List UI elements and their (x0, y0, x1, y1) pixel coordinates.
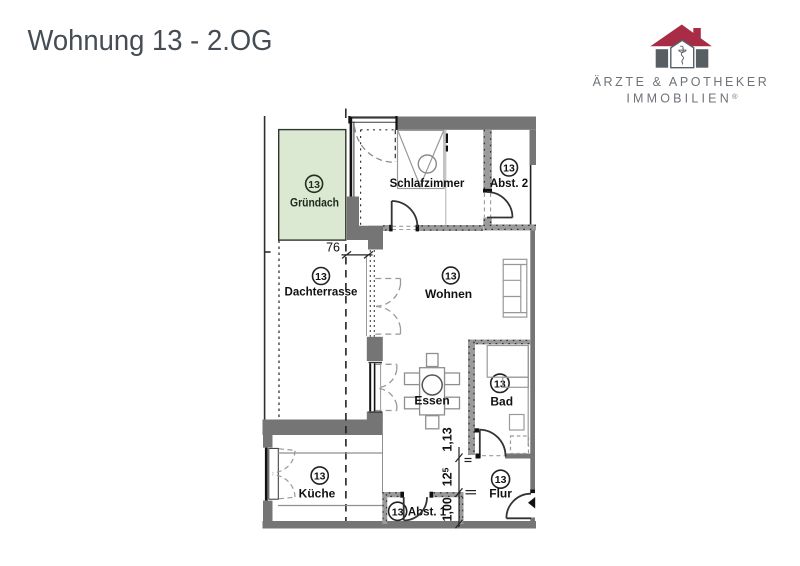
svg-text:Wohnung 13 - 2.OG: Wohnung 13 - 2.OG (28, 25, 273, 57)
svg-text:13: 13 (314, 471, 326, 483)
svg-text:Gründach: Gründach (290, 198, 339, 210)
svg-text:1,13: 1,13 (441, 427, 455, 451)
svg-text:13: 13 (308, 179, 320, 191)
svg-text:ÄRZTE & APOTHEKER: ÄRZTE & APOTHEKER (593, 75, 770, 89)
svg-text:1,00: 1,00 (441, 497, 455, 521)
svg-text:Küche: Küche (299, 487, 336, 501)
svg-text:Flur: Flur (489, 487, 512, 501)
svg-text:Bad: Bad (490, 395, 513, 409)
svg-text:IMMOBILIEN®: IMMOBILIEN® (626, 92, 740, 106)
svg-text:13: 13 (503, 163, 515, 175)
svg-text:Essen: Essen (414, 394, 449, 408)
svg-text:13: 13 (392, 506, 404, 518)
svg-text:13: 13 (445, 271, 457, 283)
svg-text:Schlafzimmer: Schlafzimmer (390, 178, 465, 190)
svg-text:Wohnen: Wohnen (425, 287, 472, 301)
svg-text:Abst. 2: Abst. 2 (490, 178, 528, 190)
svg-text:13: 13 (315, 271, 327, 283)
svg-text:76: 76 (326, 241, 340, 255)
svg-text:13: 13 (495, 474, 507, 486)
svg-text:13: 13 (494, 378, 506, 390)
